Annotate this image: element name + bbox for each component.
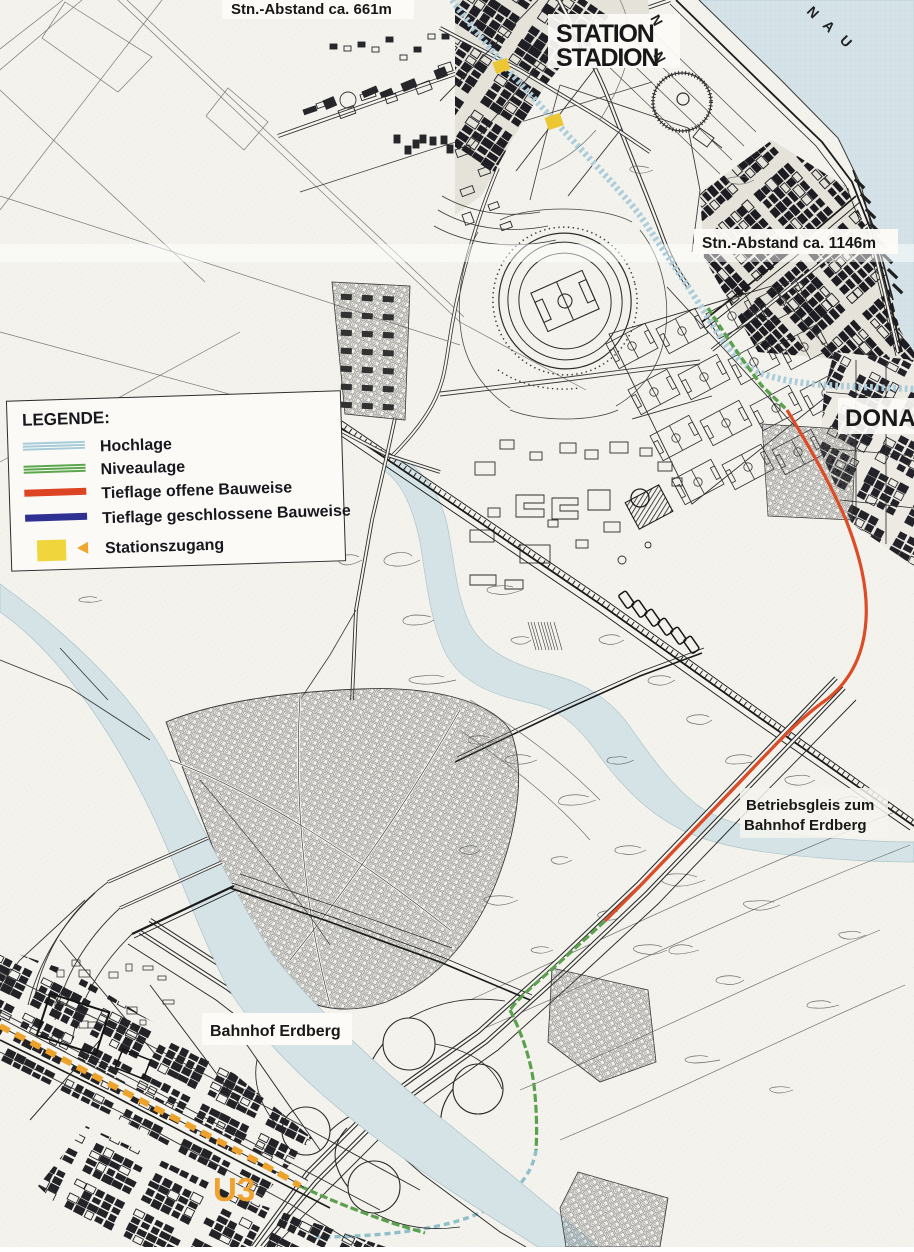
svg-text:Stn.-Abstand ca. 1146m: Stn.-Abstand ca. 1146m: [702, 235, 876, 252]
svg-text:Hochlage: Hochlage: [100, 436, 173, 455]
svg-text:LEGENDE:: LEGENDE:: [22, 408, 110, 430]
svg-text:U3: U3: [213, 1171, 255, 1208]
svg-text:Stn.-Abstand ca. 661m: Stn.-Abstand ca. 661m: [231, 1, 392, 18]
svg-text:Bahnhof Erdberg: Bahnhof Erdberg: [210, 1023, 341, 1040]
svg-text:STADION: STADION: [556, 44, 658, 72]
svg-text:DONA: DONA: [845, 405, 914, 432]
svg-text:Niveaulage: Niveaulage: [100, 459, 185, 479]
svg-text:Bahnhof Erdberg: Bahnhof Erdberg: [744, 817, 867, 834]
svg-text:Betriebsgleis zum: Betriebsgleis zum: [746, 797, 874, 814]
